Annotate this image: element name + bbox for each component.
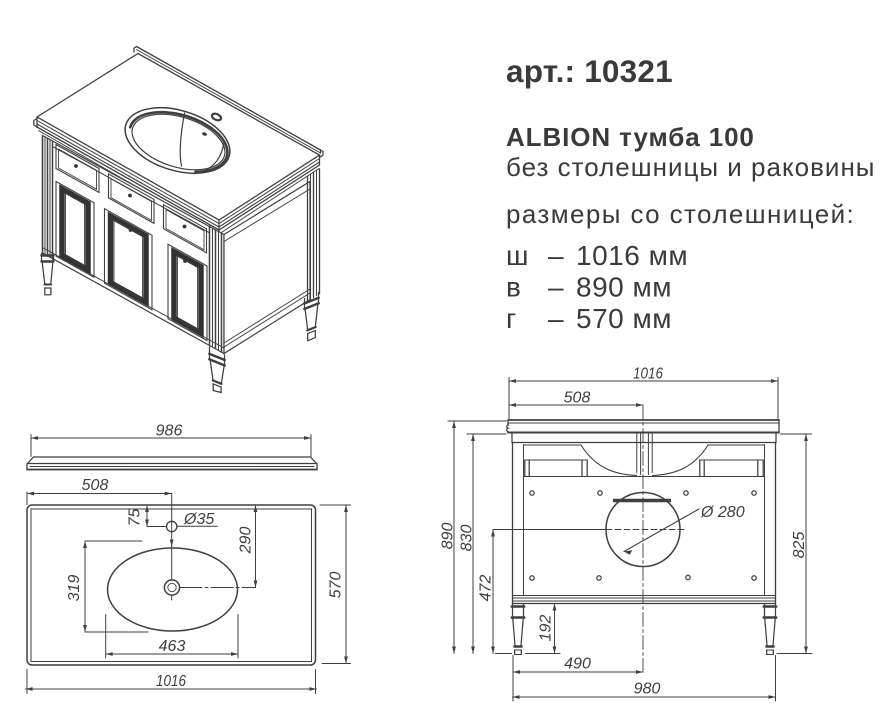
svg-text:319: 319 bbox=[66, 575, 83, 602]
svg-text:размеры со столешницей:: размеры со столешницей: bbox=[506, 199, 855, 229]
svg-text:75: 75 bbox=[127, 509, 144, 527]
svg-text:без столешницы и раковины: без столешницы и раковины bbox=[506, 152, 876, 182]
svg-text:арт.: 10321: арт.: 10321 bbox=[506, 53, 673, 89]
svg-text:890: 890 bbox=[440, 523, 457, 550]
svg-text:490: 490 bbox=[564, 656, 591, 673]
svg-text:–: – bbox=[548, 240, 564, 271]
svg-text:г: г bbox=[506, 303, 516, 334]
svg-text:ш: ш bbox=[506, 240, 528, 271]
svg-text:Ø 280: Ø 280 bbox=[700, 504, 745, 521]
svg-text:830: 830 bbox=[459, 525, 476, 552]
svg-text:–: – bbox=[548, 303, 564, 334]
svg-text:825: 825 bbox=[791, 532, 808, 559]
svg-text:192: 192 bbox=[538, 615, 555, 642]
svg-text:–: – bbox=[548, 272, 564, 303]
svg-text:ALBION тумба 100: ALBION тумба 100 bbox=[506, 122, 755, 152]
svg-text:570: 570 bbox=[328, 572, 345, 599]
svg-text:463: 463 bbox=[159, 638, 186, 655]
svg-text:290: 290 bbox=[238, 527, 255, 555]
svg-text:890 мм: 890 мм bbox=[576, 272, 672, 303]
svg-text:570 мм: 570 мм bbox=[576, 303, 672, 334]
svg-text:472: 472 bbox=[478, 575, 495, 602]
svg-text:1016: 1016 bbox=[156, 673, 186, 690]
svg-text:1016 мм: 1016 мм bbox=[576, 240, 688, 271]
svg-text:в: в bbox=[506, 272, 521, 303]
svg-text:508: 508 bbox=[82, 477, 109, 494]
svg-text:Ø35: Ø35 bbox=[183, 511, 214, 528]
svg-text:986: 986 bbox=[156, 423, 183, 440]
svg-text:1016: 1016 bbox=[633, 366, 663, 383]
svg-text:980: 980 bbox=[634, 681, 661, 698]
svg-text:508: 508 bbox=[564, 390, 591, 407]
